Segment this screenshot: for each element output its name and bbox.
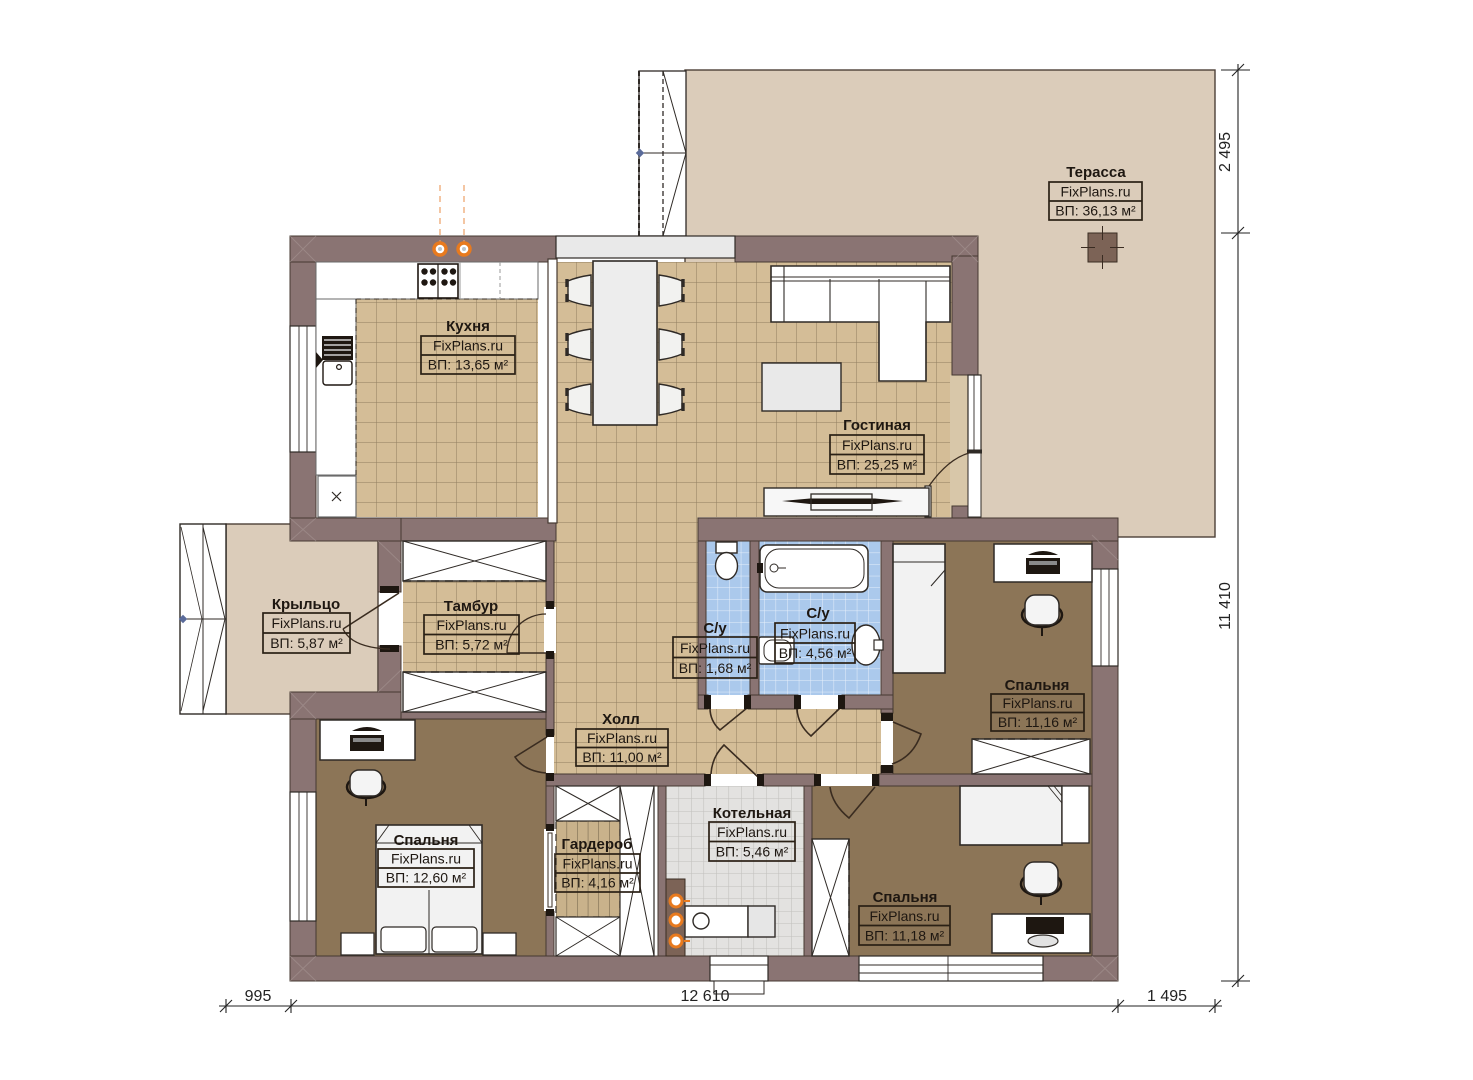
svg-text:ВП: 12,60 м²: ВП: 12,60 м² bbox=[386, 870, 467, 886]
svg-text:ВП: 4,16 м²: ВП: 4,16 м² bbox=[561, 875, 634, 891]
svg-text:FixPlans.ru: FixPlans.ru bbox=[842, 437, 912, 453]
svg-text:Кухня: Кухня bbox=[446, 318, 490, 335]
svg-text:С/у: С/у bbox=[806, 605, 830, 622]
svg-text:Спальня: Спальня bbox=[394, 832, 459, 849]
svg-text:FixPlans.ru: FixPlans.ru bbox=[1002, 695, 1072, 711]
svg-text:ВП: 1,68 м²: ВП: 1,68 м² bbox=[679, 660, 752, 676]
svg-text:Терасса: Терасса bbox=[1066, 164, 1126, 181]
svg-text:FixPlans.ru: FixPlans.ru bbox=[433, 338, 503, 354]
svg-text:ВП: 5,72 м²: ВП: 5,72 м² bbox=[435, 637, 508, 653]
svg-text:Гардероб: Гардероб bbox=[562, 836, 633, 853]
svg-text:FixPlans.ru: FixPlans.ru bbox=[869, 908, 939, 924]
svg-text:Спальня: Спальня bbox=[873, 889, 938, 906]
svg-text:Спальня: Спальня bbox=[1005, 677, 1070, 694]
svg-text:FixPlans.ru: FixPlans.ru bbox=[717, 824, 787, 840]
svg-text:ВП: 5,46 м²: ВП: 5,46 м² bbox=[716, 844, 789, 860]
svg-text:FixPlans.ru: FixPlans.ru bbox=[562, 856, 632, 872]
svg-text:Крыльцо: Крыльцо bbox=[272, 596, 340, 613]
svg-text:995: 995 bbox=[245, 988, 272, 1005]
svg-text:Тамбур: Тамбур bbox=[444, 598, 498, 615]
svg-text:1 495: 1 495 bbox=[1147, 988, 1187, 1005]
svg-text:FixPlans.ru: FixPlans.ru bbox=[436, 617, 506, 633]
svg-text:ВП: 11,00 м²: ВП: 11,00 м² bbox=[582, 749, 662, 765]
svg-text:ВП: 25,25 м²: ВП: 25,25 м² bbox=[837, 457, 918, 473]
svg-text:FixPlans.ru: FixPlans.ru bbox=[780, 626, 850, 642]
svg-text:С/у: С/у bbox=[703, 620, 727, 637]
svg-text:12 610: 12 610 bbox=[681, 988, 730, 1005]
svg-text:FixPlans.ru: FixPlans.ru bbox=[1060, 184, 1130, 200]
svg-text:FixPlans.ru: FixPlans.ru bbox=[587, 730, 657, 746]
svg-text:11 410: 11 410 bbox=[1217, 582, 1234, 630]
svg-text:ВП: 11,16 м²: ВП: 11,16 м² bbox=[998, 714, 1078, 730]
svg-text:ВП: 4,56 м²: ВП: 4,56 м² bbox=[779, 645, 852, 661]
svg-text:Котельная: Котельная bbox=[713, 805, 792, 822]
svg-text:FixPlans.ru: FixPlans.ru bbox=[391, 851, 461, 867]
svg-text:ВП: 13,65 м²: ВП: 13,65 м² bbox=[428, 357, 509, 373]
svg-text:ВП: 36,13 м²: ВП: 36,13 м² bbox=[1055, 203, 1136, 219]
svg-text:Холл: Холл bbox=[602, 711, 640, 728]
svg-text:FixPlans.ru: FixPlans.ru bbox=[271, 615, 341, 631]
svg-text:ВП: 5,87 м²: ВП: 5,87 м² bbox=[270, 635, 343, 651]
svg-text:FixPlans.ru: FixPlans.ru bbox=[680, 640, 750, 656]
svg-text:ВП: 11,18 м²: ВП: 11,18 м² bbox=[865, 928, 945, 944]
svg-text:Гостиная: Гостиная bbox=[843, 417, 911, 434]
svg-text:2 495: 2 495 bbox=[1217, 132, 1234, 172]
